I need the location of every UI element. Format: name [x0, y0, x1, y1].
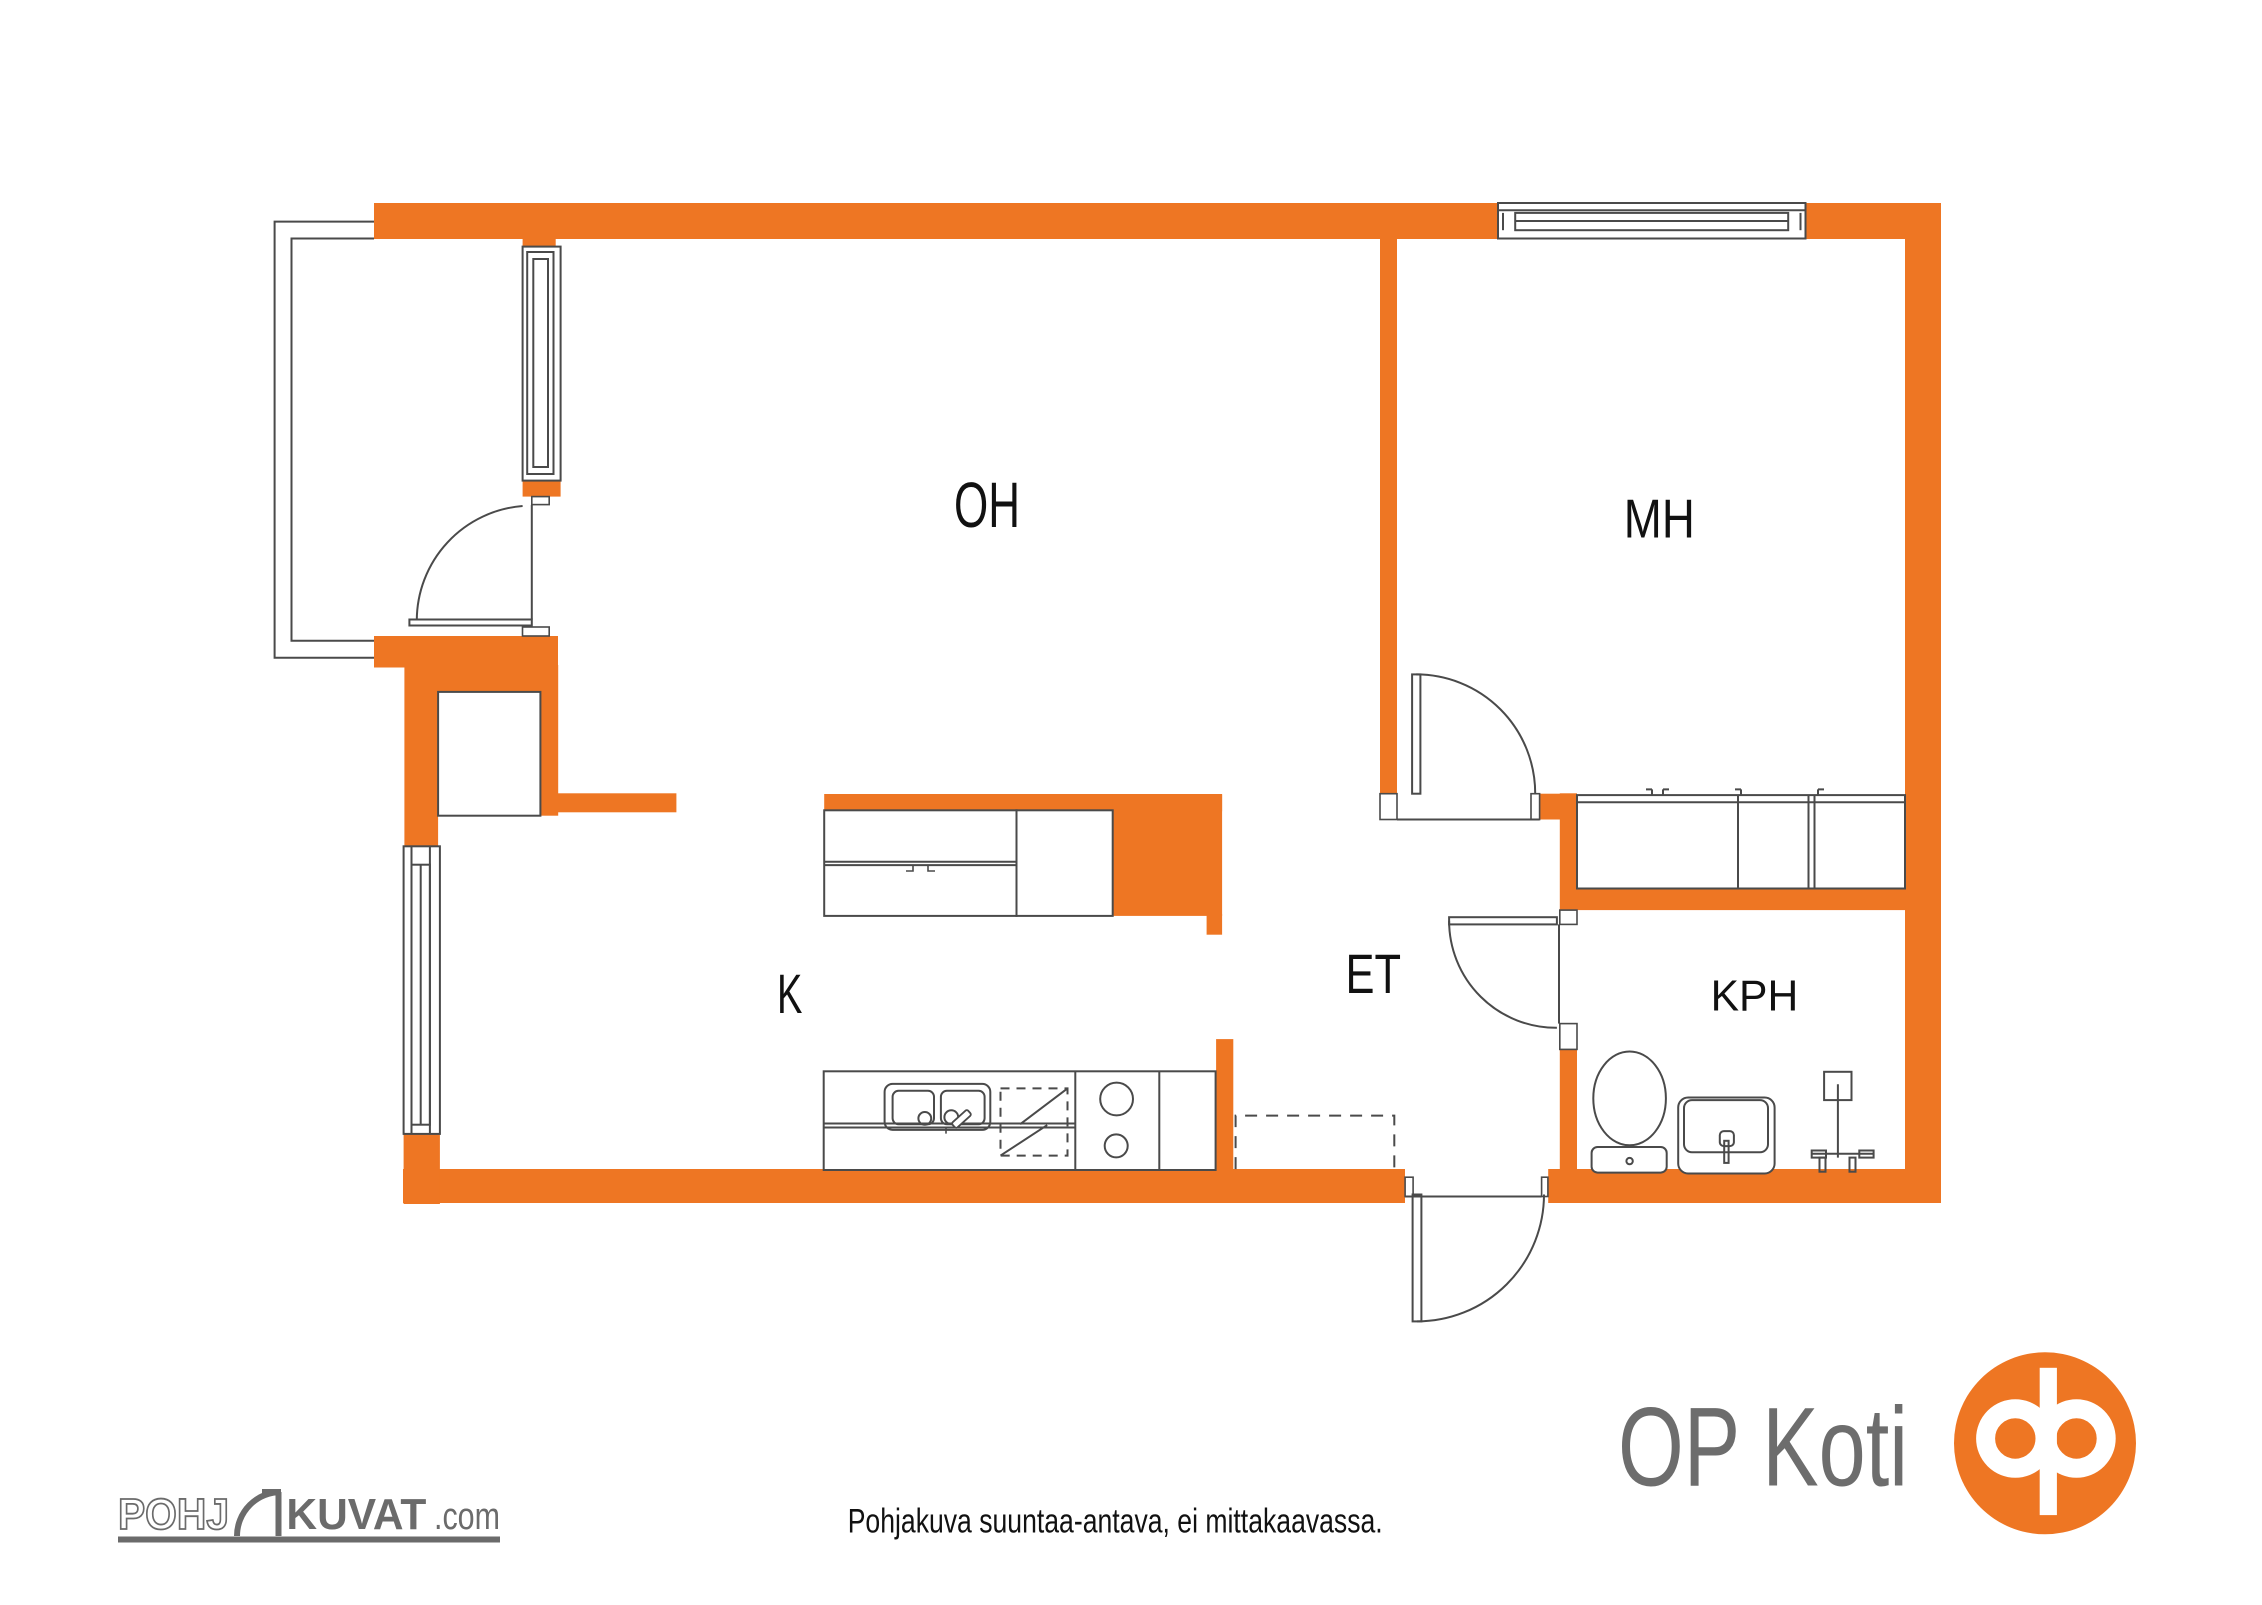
- svg-text:.com: .com: [434, 1496, 500, 1538]
- svg-text:KUVAT: KUVAT: [286, 1490, 426, 1539]
- svg-text:K: K: [777, 962, 802, 1025]
- svg-text:OP Koti: OP Koti: [1618, 1385, 1908, 1510]
- svg-text:OH: OH: [954, 469, 1020, 541]
- svg-text:KPH: KPH: [1711, 972, 1799, 1021]
- svg-text:MH: MH: [1624, 488, 1695, 550]
- svg-text:ET: ET: [1346, 942, 1402, 1005]
- svg-text:POHJ: POHJ: [118, 1490, 229, 1539]
- svg-text:Pohjakuva suuntaa-antava, ei m: Pohjakuva suuntaa-antava, ei mittakaavas…: [848, 1502, 1383, 1540]
